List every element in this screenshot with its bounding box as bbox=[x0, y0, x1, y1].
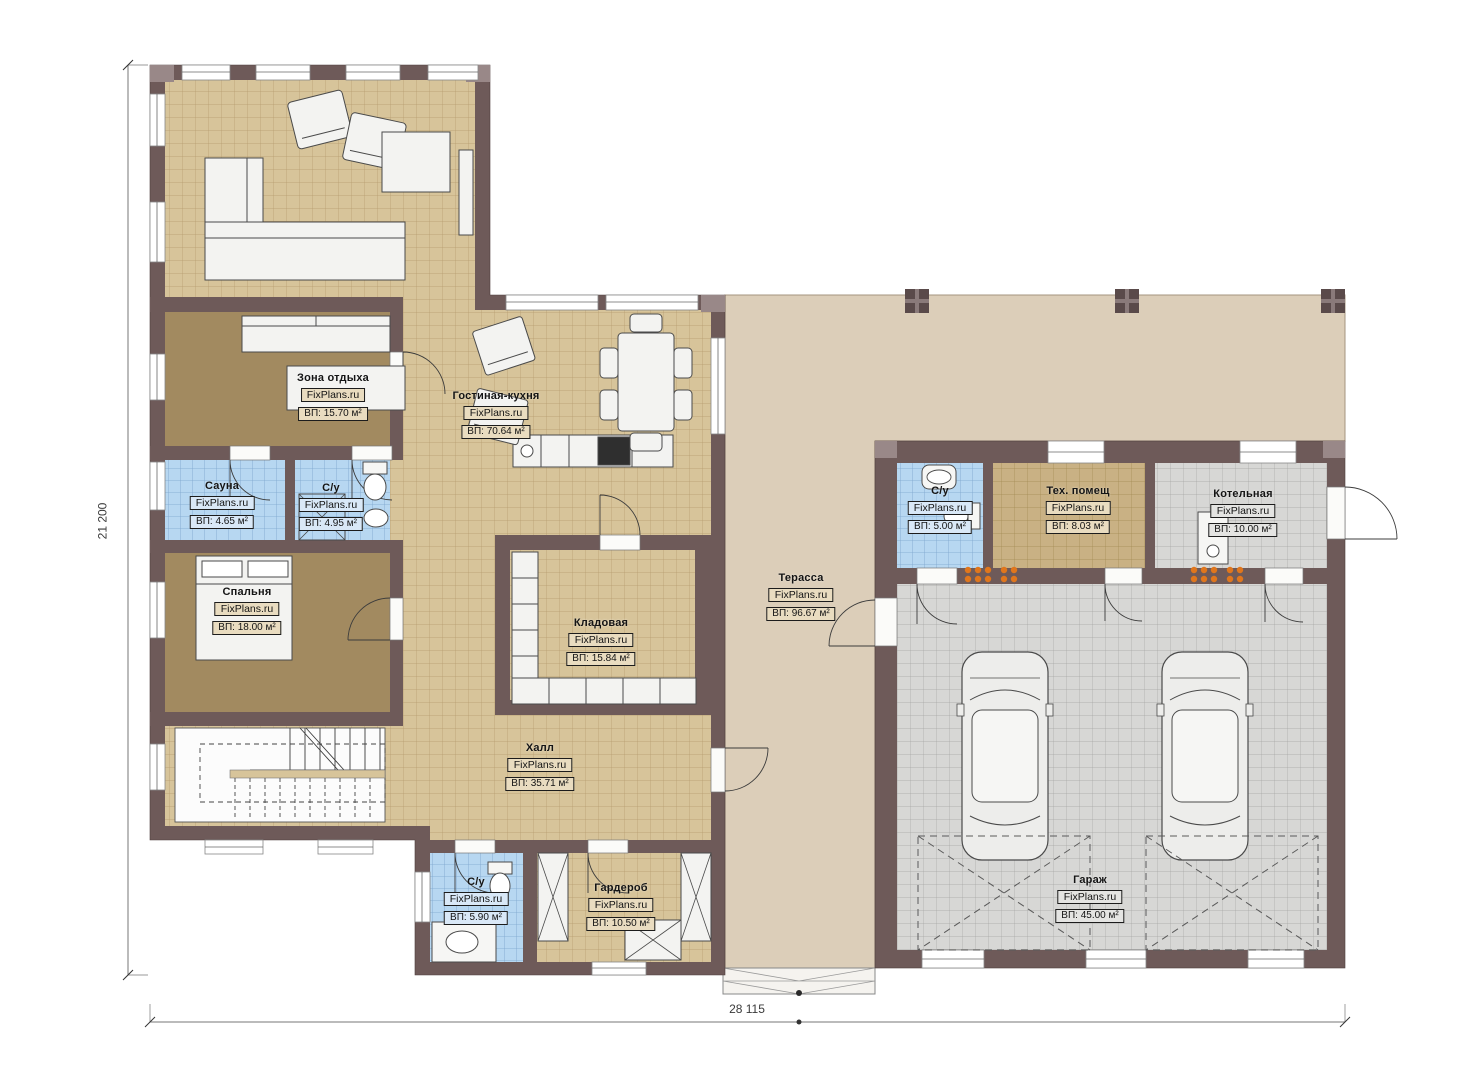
room-area: ВП: 5.90 м² bbox=[444, 911, 508, 925]
room-area: ВП: 96.67 м² bbox=[766, 607, 835, 621]
room-label-bathroom-1: С/у FixPlans.ru ВП: 4.95 м² bbox=[299, 482, 364, 531]
room-label-kitchen-living: Гостиная-кухня FixPlans.ru ВП: 70.64 м² bbox=[452, 390, 539, 439]
room-watermark: FixPlans.ru bbox=[444, 892, 509, 906]
room-watermark: FixPlans.ru bbox=[908, 501, 973, 515]
room-area: ВП: 10.50 м² bbox=[586, 917, 655, 931]
room-watermark: FixPlans.ru bbox=[215, 602, 280, 616]
room-name: С/у bbox=[299, 482, 364, 495]
floor-plan: Зона отдыха FixPlans.ru ВП: 15.70 м² Гос… bbox=[0, 0, 1473, 1080]
room-watermark: FixPlans.ru bbox=[769, 588, 834, 602]
room-label-wardrobe: Гардероб FixPlans.ru ВП: 10.50 м² bbox=[586, 882, 655, 931]
room-watermark: FixPlans.ru bbox=[299, 498, 364, 512]
room-watermark: FixPlans.ru bbox=[569, 633, 634, 647]
room-name: С/у bbox=[908, 485, 973, 498]
room-name: Гардероб bbox=[586, 882, 655, 895]
room-watermark: FixPlans.ru bbox=[190, 496, 255, 510]
room-label-boiler-room: Котельная FixPlans.ru ВП: 10.00 м² bbox=[1208, 488, 1277, 537]
room-name: Гостиная-кухня bbox=[452, 390, 539, 403]
room-label-terrace: Терасса FixPlans.ru ВП: 96.67 м² bbox=[766, 572, 835, 621]
room-label-garage: Гараж FixPlans.ru ВП: 45.00 м² bbox=[1055, 874, 1124, 923]
dimension-width: 28 115 bbox=[729, 1002, 765, 1016]
room-area: ВП: 10.00 м² bbox=[1208, 523, 1277, 537]
room-label-hall: Халл FixPlans.ru ВП: 35.71 м² bbox=[505, 742, 574, 791]
room-name: Сауна bbox=[190, 480, 255, 493]
car-left bbox=[957, 652, 1053, 860]
room-watermark: FixPlans.ru bbox=[589, 898, 654, 912]
room-name: Гараж bbox=[1055, 874, 1124, 887]
room-name: Кладовая bbox=[566, 617, 635, 630]
entry-porch bbox=[723, 968, 875, 996]
room-name: Терасса bbox=[766, 572, 835, 585]
room-name: С/у bbox=[444, 876, 509, 889]
room-label-bedroom: Спальня FixPlans.ru ВП: 18.00 м² bbox=[212, 586, 281, 635]
room-name: Котельная bbox=[1208, 488, 1277, 501]
room-area: ВП: 8.03 м² bbox=[1046, 520, 1110, 534]
room-label-bathroom-3: С/у FixPlans.ru ВП: 5.00 м² bbox=[908, 485, 973, 534]
dimension-height: 21 200 bbox=[95, 503, 109, 540]
room-area: ВП: 45.00 м² bbox=[1055, 909, 1124, 923]
floor-plan-drawing bbox=[0, 0, 1473, 1080]
room-area: ВП: 18.00 м² bbox=[212, 621, 281, 635]
room-watermark: FixPlans.ru bbox=[464, 406, 529, 420]
room-name: Зона отдыха bbox=[297, 372, 369, 385]
car-right bbox=[1157, 652, 1253, 860]
room-area: ВП: 15.70 м² bbox=[298, 407, 367, 421]
room-label-pantry: Кладовая FixPlans.ru ВП: 15.84 м² bbox=[566, 617, 635, 666]
room-watermark: FixPlans.ru bbox=[508, 758, 573, 772]
room-label-sauna: Сауна FixPlans.ru ВП: 4.65 м² bbox=[190, 480, 255, 529]
room-watermark: FixPlans.ru bbox=[1211, 504, 1276, 518]
room-name: Тех. помещ bbox=[1046, 485, 1111, 498]
room-area: ВП: 35.71 м² bbox=[505, 777, 574, 791]
room-name: Спальня bbox=[212, 586, 281, 599]
room-area: ВП: 15.84 м² bbox=[566, 652, 635, 666]
room-watermark: FixPlans.ru bbox=[301, 388, 366, 402]
staircase bbox=[175, 728, 385, 822]
room-label-bathroom-2: С/у FixPlans.ru ВП: 5.90 м² bbox=[444, 876, 509, 925]
room-area: ВП: 4.65 м² bbox=[190, 515, 254, 529]
room-area: ВП: 70.64 м² bbox=[461, 425, 530, 439]
room-label-tech-room: Тех. помещ FixPlans.ru ВП: 8.03 м² bbox=[1046, 485, 1111, 534]
room-name: Халл bbox=[505, 742, 574, 755]
room-watermark: FixPlans.ru bbox=[1046, 501, 1111, 515]
room-area: ВП: 5.00 м² bbox=[908, 520, 972, 534]
room-label-lounge: Зона отдыха FixPlans.ru ВП: 15.70 м² bbox=[297, 372, 369, 421]
room-area: ВП: 4.95 м² bbox=[299, 517, 363, 531]
room-watermark: FixPlans.ru bbox=[1058, 890, 1123, 904]
